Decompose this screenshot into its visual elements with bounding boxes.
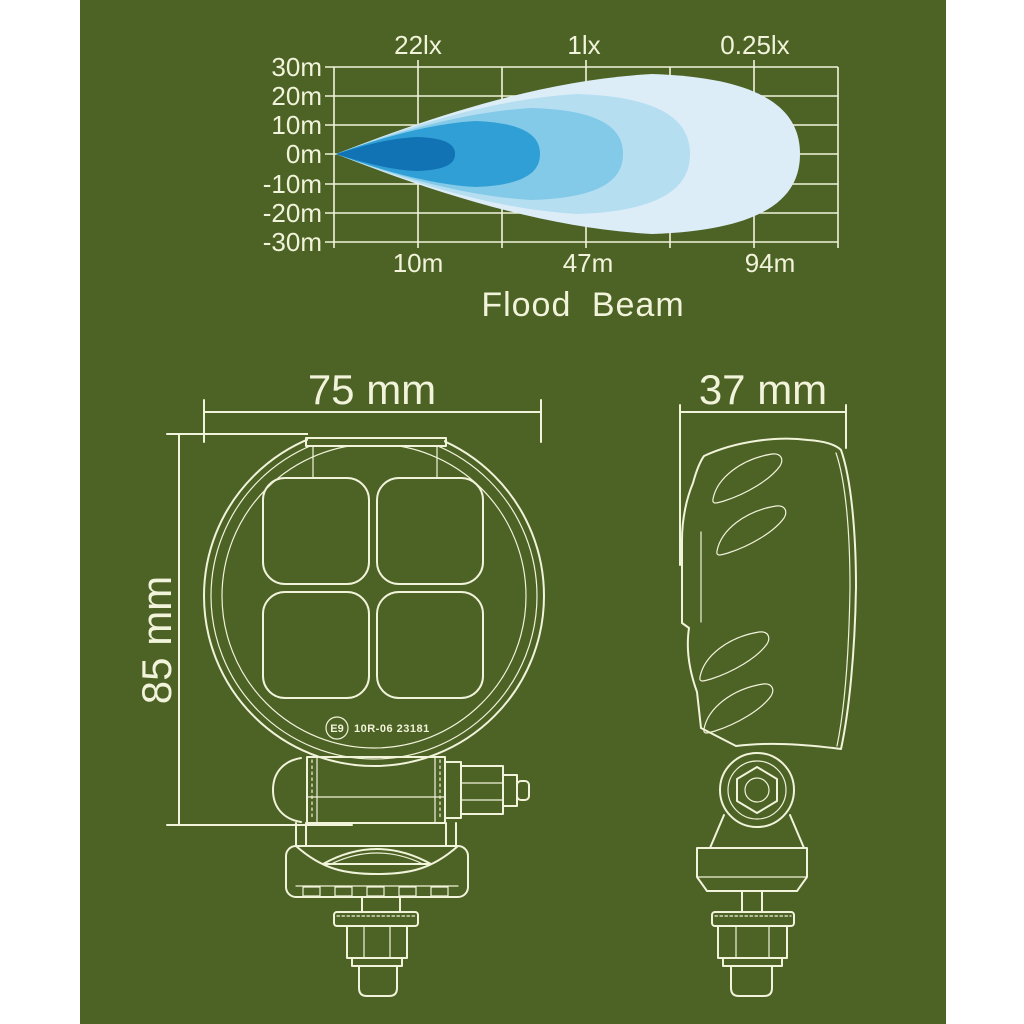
y-label-10: 10m — [271, 110, 322, 140]
y-label-n10: -10m — [263, 169, 322, 199]
y-label-0: 0m — [286, 139, 322, 169]
lux-label-025: 0.25lx — [720, 30, 789, 60]
y-label-20: 20m — [271, 81, 322, 111]
y-label-n30: -30m — [263, 227, 322, 257]
x-label-94m: 94m — [745, 248, 796, 278]
lux-label-22: 22lx — [394, 30, 442, 60]
product-spec-sheet: 30m 20m 10m 0m -10m -20m -30m 22lx 1lx 0… — [0, 0, 1024, 1024]
lux-label-1: 1lx — [567, 30, 600, 60]
chart-title: Flood Beam — [481, 286, 684, 324]
side-width-label: 37 mm — [699, 366, 827, 413]
front-width-label: 75 mm — [308, 366, 436, 413]
front-height-label: 85 mm — [133, 576, 180, 704]
y-label-n20: -20m — [263, 198, 322, 228]
y-label-30: 30m — [271, 52, 322, 82]
spec-drawing-svg: 30m 20m 10m 0m -10m -20m -30m 22lx 1lx 0… — [0, 0, 1024, 1024]
x-label-10m: 10m — [393, 248, 444, 278]
top-tab-mask — [308, 420, 444, 445]
e-mark-label: E9 — [330, 723, 343, 735]
x-label-47m: 47m — [563, 248, 614, 278]
approval-code: 10R-06 23181 — [354, 723, 430, 735]
